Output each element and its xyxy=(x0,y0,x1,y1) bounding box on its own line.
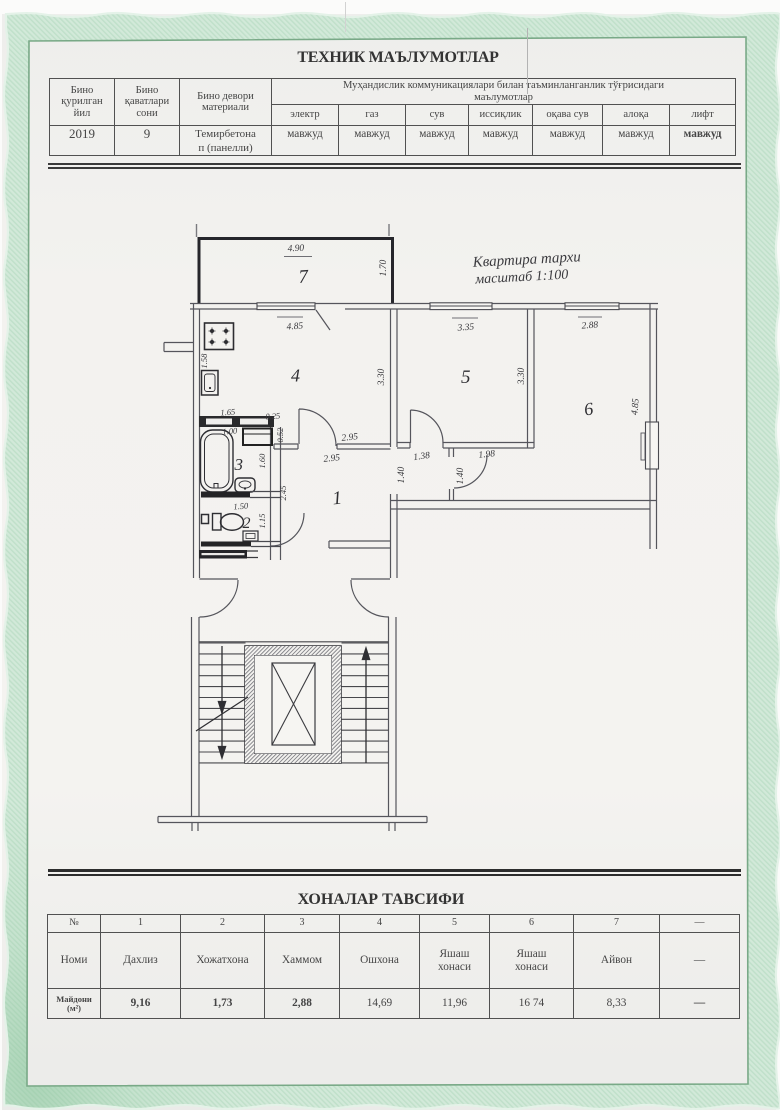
svg-text:2.95: 2.95 xyxy=(323,453,341,465)
svg-text:4.85: 4.85 xyxy=(630,398,641,416)
svg-text:1.00: 1.00 xyxy=(222,425,238,436)
svg-text:масштаб 1:100: масштаб 1:100 xyxy=(474,268,569,288)
svg-text:3.35: 3.35 xyxy=(456,322,475,333)
svg-text:1.60: 1.60 xyxy=(257,453,267,469)
svg-text:5: 5 xyxy=(461,367,471,388)
svg-text:2.45: 2.45 xyxy=(278,486,288,501)
svg-text:4.85: 4.85 xyxy=(286,321,304,332)
svg-text:0.52: 0.52 xyxy=(275,427,285,443)
svg-text:1.38: 1.38 xyxy=(413,451,431,463)
svg-text:1.40: 1.40 xyxy=(397,466,407,483)
svg-text:3: 3 xyxy=(234,455,244,474)
svg-text:0.25: 0.25 xyxy=(265,411,281,422)
svg-text:1.40: 1.40 xyxy=(456,467,466,484)
svg-text:1.50: 1.50 xyxy=(233,500,249,511)
svg-text:1.15: 1.15 xyxy=(257,514,267,529)
svg-text:3.30: 3.30 xyxy=(517,367,527,385)
svg-text:1.70: 1.70 xyxy=(379,259,389,276)
svg-text:1.65: 1.65 xyxy=(220,407,236,418)
svg-text:2.95: 2.95 xyxy=(341,432,359,444)
svg-text:7: 7 xyxy=(298,266,310,288)
svg-text:2.88: 2.88 xyxy=(581,320,599,331)
svg-text:1.98: 1.98 xyxy=(478,449,496,461)
svg-text:4.90: 4.90 xyxy=(287,244,304,255)
svg-text:6: 6 xyxy=(583,398,595,419)
svg-text:1: 1 xyxy=(331,488,343,510)
svg-text:4: 4 xyxy=(291,366,300,386)
svg-text:2: 2 xyxy=(243,515,251,532)
svg-text:1.58: 1.58 xyxy=(199,353,209,369)
svg-text:3.30: 3.30 xyxy=(377,368,387,386)
